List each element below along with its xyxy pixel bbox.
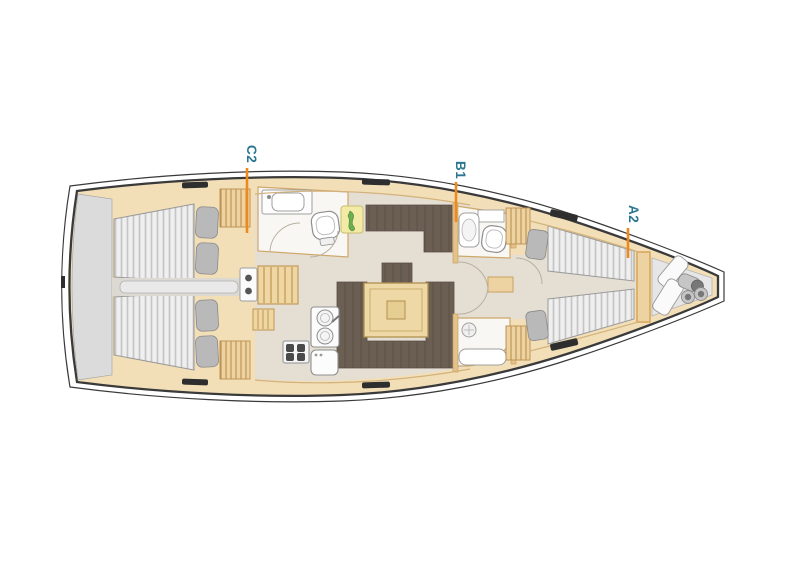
shower-bench xyxy=(459,349,506,365)
fender-icon xyxy=(682,291,695,304)
sink-basin-icon xyxy=(317,328,333,344)
wardrobe-locker xyxy=(506,208,530,244)
label-a2-text: A2 xyxy=(626,205,641,223)
panel-knob-icon xyxy=(245,275,252,282)
shower-starboard xyxy=(456,318,510,366)
artwork xyxy=(341,206,363,233)
burner-icon xyxy=(297,353,305,361)
boat-floorplan: C2 B1 A2 xyxy=(0,0,800,566)
label-b1-text: B1 xyxy=(453,161,468,179)
burner-icon xyxy=(286,344,294,352)
deck-hatch xyxy=(182,182,208,189)
deck-hatch xyxy=(362,179,390,186)
pillow xyxy=(195,242,219,274)
bulkhead-wall xyxy=(453,314,458,372)
oven-knob xyxy=(315,354,318,357)
wardrobe-locker xyxy=(220,341,250,379)
boat-floorplan-page: C2 B1 A2 xyxy=(0,0,800,566)
forward-bulkhead xyxy=(637,252,650,322)
head-port xyxy=(258,187,348,257)
label-c2-text: C2 xyxy=(244,145,259,163)
pillow xyxy=(195,335,219,367)
entry-step xyxy=(488,277,513,292)
salon-table-center xyxy=(387,301,405,319)
galley-oven xyxy=(311,350,338,375)
wardrobe-locker xyxy=(506,326,530,360)
sink-basin-icon xyxy=(462,219,476,241)
oven-knob xyxy=(320,354,323,357)
burner-icon xyxy=(286,353,294,361)
pillow xyxy=(195,299,219,331)
cistern-shelf xyxy=(478,210,504,222)
deck-hatch xyxy=(182,379,208,386)
faucet-icon xyxy=(267,195,271,199)
fender-icon xyxy=(695,288,708,301)
engine-hatch xyxy=(120,281,238,293)
deck-hatch xyxy=(362,382,390,389)
burner-icon xyxy=(297,344,305,352)
pillow xyxy=(525,310,549,342)
settee-center-seat xyxy=(382,263,412,285)
engine-hatch-corridor xyxy=(112,278,258,296)
wardrobe-locker xyxy=(220,189,250,227)
head-starboard xyxy=(456,206,510,258)
toilet-icon xyxy=(480,224,507,253)
electrical-panel xyxy=(240,268,257,301)
pillow xyxy=(525,229,549,261)
sink-basin-icon xyxy=(317,310,333,326)
transom-cleat xyxy=(61,276,65,288)
sink-icon xyxy=(272,193,304,211)
pillow xyxy=(195,206,219,238)
stern-platform xyxy=(72,194,112,380)
panel-knob-icon xyxy=(245,288,252,295)
swim-platform xyxy=(72,194,112,380)
